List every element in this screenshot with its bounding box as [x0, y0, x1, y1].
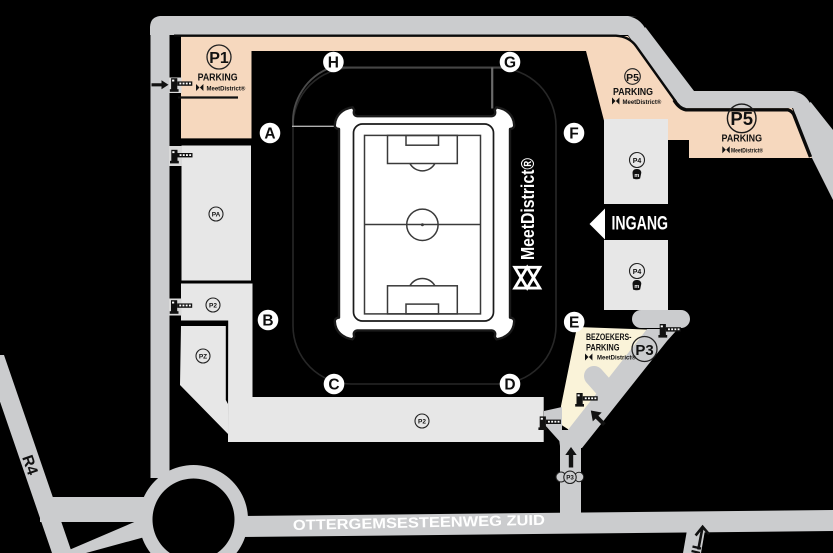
svg-text:m: m: [634, 284, 639, 290]
svg-text:MeetDistrict®: MeetDistrict®: [518, 158, 538, 260]
svg-text:H: H: [328, 55, 339, 72]
svg-text:A: A: [264, 126, 275, 143]
svg-text:MeetDistrict®: MeetDistrict®: [731, 148, 763, 155]
svg-text:PARKING: PARKING: [586, 343, 620, 353]
svg-text:P4: P4: [633, 158, 642, 165]
svg-text:P4: P4: [633, 269, 642, 276]
svg-text:P1: P1: [209, 50, 229, 67]
svg-text:C: C: [328, 377, 339, 394]
svg-text:PZ: PZ: [199, 354, 207, 361]
svg-text:MeetDistrict®: MeetDistrict®: [597, 355, 636, 362]
svg-text:PARKING: PARKING: [198, 72, 238, 83]
svg-text:m: m: [634, 173, 639, 179]
svg-text:F: F: [569, 126, 578, 143]
svg-text:G: G: [504, 55, 516, 72]
svg-text:P2: P2: [209, 303, 217, 310]
svg-text:P5: P5: [626, 72, 639, 84]
svg-text:P2: P2: [418, 419, 426, 426]
svg-text:MeetDistrict®: MeetDistrict®: [623, 99, 662, 106]
svg-text:P3: P3: [635, 342, 653, 359]
svg-text:MeetDistrict®: MeetDistrict®: [207, 86, 246, 93]
svg-text:PA: PA: [212, 212, 221, 219]
svg-text:P5: P5: [730, 108, 753, 129]
svg-text:BEZOEKERS-: BEZOEKERS-: [586, 332, 632, 342]
svg-text:PARKING: PARKING: [722, 134, 763, 145]
svg-text:B: B: [262, 313, 273, 330]
svg-text:P3: P3: [566, 475, 574, 482]
svg-text:E: E: [569, 315, 579, 332]
svg-text:D: D: [504, 377, 515, 394]
svg-text:PARKING: PARKING: [613, 87, 653, 98]
svg-text:INGANG: INGANG: [612, 214, 669, 235]
